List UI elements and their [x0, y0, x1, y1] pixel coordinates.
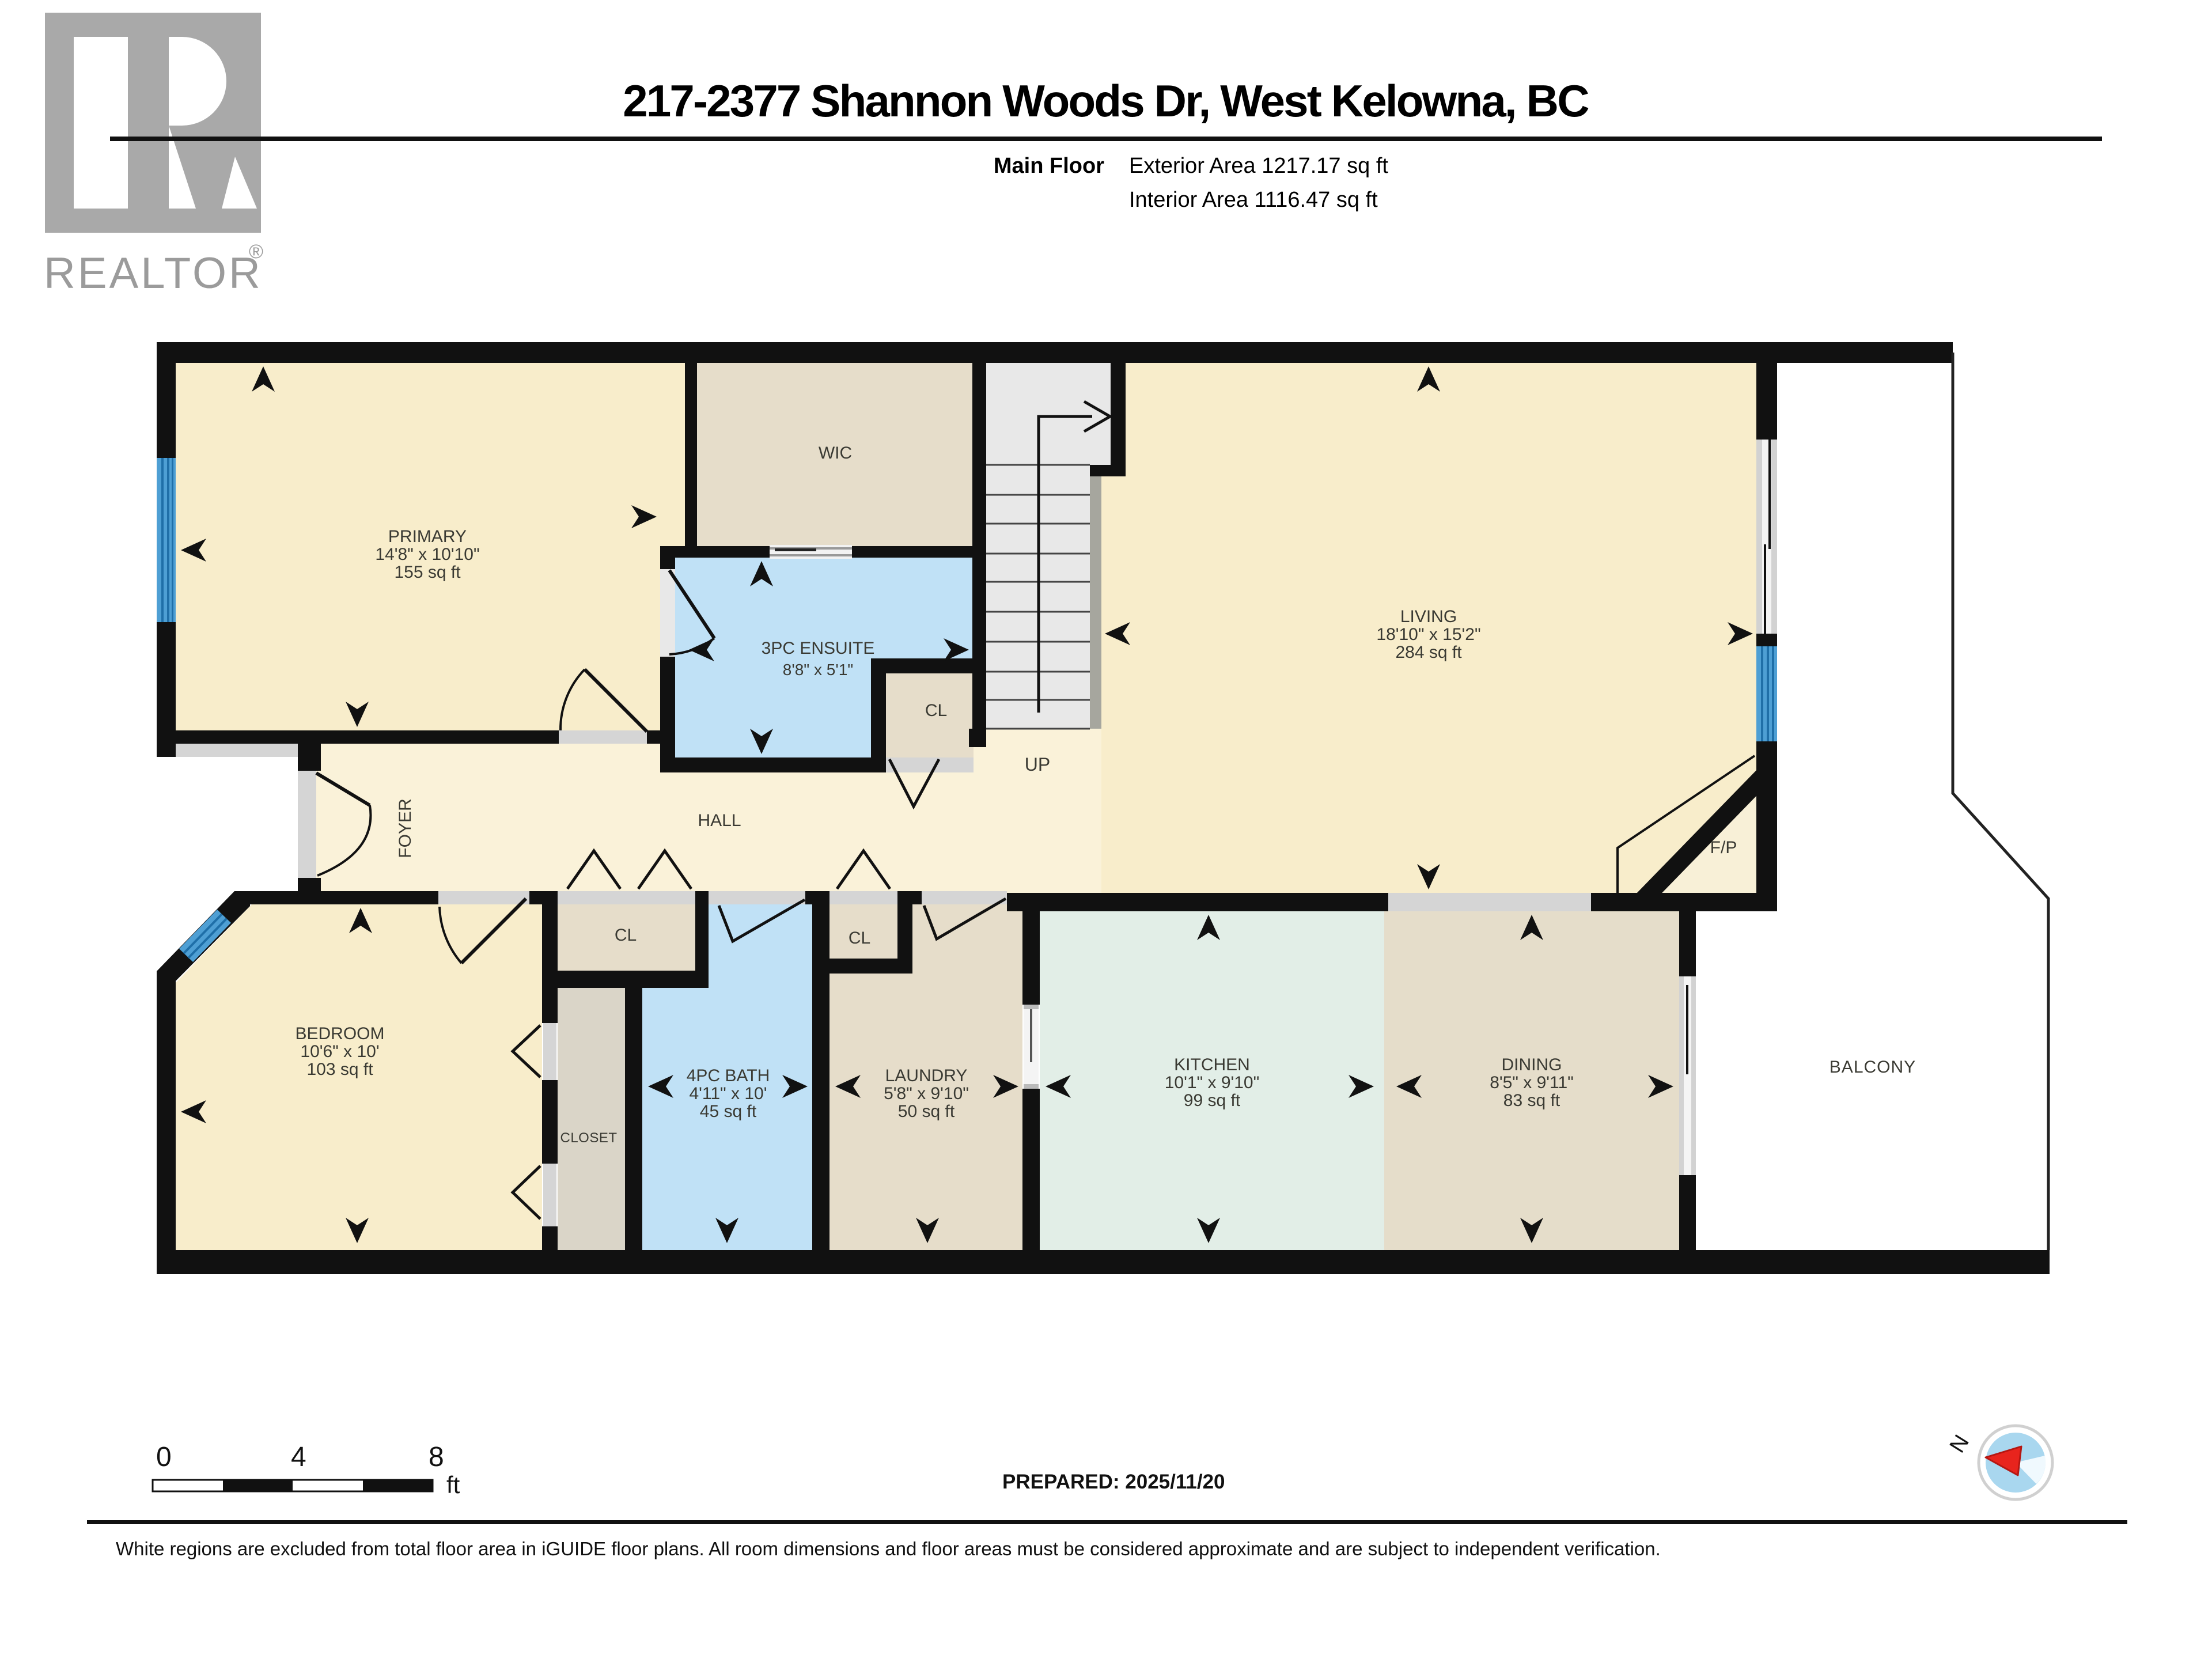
svg-text:8'5" x 9'11": 8'5" x 9'11"	[1490, 1073, 1574, 1092]
svg-text:Interior Area 1116.47 sq ft: Interior Area 1116.47 sq ft	[1129, 188, 1378, 212]
svg-text:14'8" x 10'10": 14'8" x 10'10"	[375, 545, 479, 564]
svg-text:83 sq ft: 83 sq ft	[1503, 1091, 1560, 1110]
svg-text:FOYER: FOYER	[396, 798, 415, 858]
svg-text:White regions are excluded fro: White regions are excluded from total fl…	[116, 1538, 1661, 1559]
svg-text:155 sq ft: 155 sq ft	[394, 563, 461, 582]
svg-text:UP: UP	[1025, 754, 1050, 775]
svg-text:45 sq ft: 45 sq ft	[700, 1102, 757, 1121]
svg-text:4'11" x 10': 4'11" x 10'	[690, 1084, 767, 1103]
svg-text:BEDROOM: BEDROOM	[295, 1024, 384, 1043]
svg-text:REALTOR: REALTOR	[44, 249, 263, 298]
svg-text:0: 0	[156, 1442, 172, 1472]
svg-text:99 sq ft: 99 sq ft	[1184, 1091, 1241, 1110]
svg-text:103 sq ft: 103 sq ft	[306, 1060, 373, 1079]
svg-text:Exterior Area 1217.17 sq ft: Exterior Area 1217.17 sq ft	[1129, 154, 1388, 178]
svg-text:F/P: F/P	[1710, 838, 1737, 857]
svg-text:N: N	[1945, 1431, 1974, 1457]
svg-text:LAUNDRY: LAUNDRY	[885, 1066, 968, 1085]
svg-text:10'1" x 9'10": 10'1" x 9'10"	[1165, 1073, 1260, 1092]
svg-text:284 sq ft: 284 sq ft	[1395, 643, 1462, 662]
svg-text:217-2377 Shannon Woods Dr, Wes: 217-2377 Shannon Woods Dr, West Kelowna,…	[623, 75, 1589, 126]
svg-text:®: ®	[249, 241, 263, 263]
svg-text:10'6" x 10': 10'6" x 10'	[300, 1042, 379, 1061]
svg-text:Main Floor: Main Floor	[994, 154, 1104, 178]
svg-text:WIC: WIC	[819, 444, 852, 463]
svg-text:8: 8	[429, 1442, 444, 1472]
svg-text:PRIMARY: PRIMARY	[388, 527, 467, 546]
svg-text:DINING: DINING	[1502, 1055, 1562, 1074]
svg-text:50 sq ft: 50 sq ft	[898, 1102, 955, 1121]
svg-text:BALCONY: BALCONY	[1830, 1058, 1916, 1077]
svg-text:CL: CL	[925, 701, 947, 720]
svg-text:ft: ft	[446, 1471, 460, 1498]
svg-text:4PC BATH: 4PC BATH	[687, 1066, 770, 1085]
svg-text:18'10" x 15'2": 18'10" x 15'2"	[1376, 625, 1480, 644]
svg-text:4: 4	[291, 1442, 306, 1472]
svg-text:PREPARED: 2025/11/20: PREPARED: 2025/11/20	[1002, 1471, 1225, 1493]
svg-text:8'8" x 5'1": 8'8" x 5'1"	[783, 661, 853, 679]
svg-text:LIVING: LIVING	[1400, 607, 1457, 626]
svg-text:5'8" x 9'10": 5'8" x 9'10"	[884, 1084, 969, 1103]
svg-text:CL: CL	[615, 926, 637, 945]
svg-text:3PC ENSUITE: 3PC ENSUITE	[762, 639, 875, 658]
svg-text:CL: CL	[849, 929, 870, 948]
svg-text:KITCHEN: KITCHEN	[1174, 1055, 1250, 1074]
svg-text:HALL: HALL	[698, 811, 741, 830]
svg-text:CLOSET: CLOSET	[560, 1130, 617, 1146]
